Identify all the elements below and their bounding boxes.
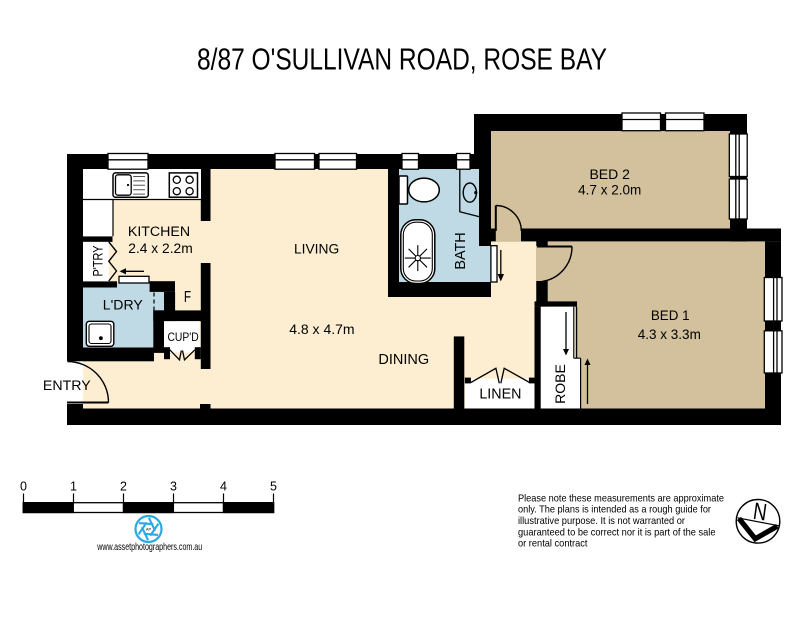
- svg-text:CUP'D: CUP'D: [167, 330, 198, 344]
- svg-text:www.assetphotographers.com.au: www.assetphotographers.com.au: [97, 541, 203, 553]
- svg-text:only. The plans is intended as: only. The plans is intended as a rough g…: [518, 504, 711, 516]
- svg-text:0: 0: [20, 480, 27, 494]
- svg-text:illustrative purpose. It is no: illustrative purpose. It is not warrante…: [518, 515, 685, 527]
- svg-text:BED 2: BED 2: [589, 166, 630, 182]
- svg-text:BATH: BATH: [453, 232, 469, 269]
- svg-text:2: 2: [120, 480, 127, 494]
- svg-text:LIVING: LIVING: [294, 242, 339, 257]
- svg-text:AP: AP: [146, 527, 152, 532]
- svg-text:4.8 x 4.7m: 4.8 x 4.7m: [289, 321, 354, 337]
- svg-text:3: 3: [170, 480, 177, 494]
- svg-text:5: 5: [270, 480, 277, 494]
- svg-text:KITCHEN: KITCHEN: [128, 224, 190, 240]
- svg-text:4: 4: [220, 480, 227, 494]
- svg-text:Please note these measurements: Please note these measurements are appro…: [518, 493, 724, 505]
- svg-text:4.7 x 2.0m: 4.7 x 2.0m: [578, 182, 641, 197]
- svg-text:2.4 x 2.2m: 2.4 x 2.2m: [128, 241, 192, 256]
- svg-text:4.3 x 3.3m: 4.3 x 3.3m: [638, 327, 701, 342]
- svg-text:P'TRY: P'TRY: [89, 245, 105, 277]
- svg-text:ROBE: ROBE: [552, 364, 568, 404]
- svg-text:BED 1: BED 1: [651, 308, 690, 323]
- svg-text:1: 1: [70, 480, 77, 494]
- svg-text:F: F: [184, 289, 191, 306]
- svg-text:L'DRY: L'DRY: [103, 297, 144, 313]
- svg-text:DINING: DINING: [378, 352, 429, 368]
- svg-text:LINEN: LINEN: [479, 386, 521, 402]
- svg-text:ENTRY: ENTRY: [43, 378, 91, 394]
- svg-text:or rental contract: or rental contract: [518, 538, 588, 550]
- svg-text:8/87 O'SULLIVAN ROAD, ROSE BAY: 8/87 O'SULLIVAN ROAD, ROSE BAY: [197, 42, 607, 77]
